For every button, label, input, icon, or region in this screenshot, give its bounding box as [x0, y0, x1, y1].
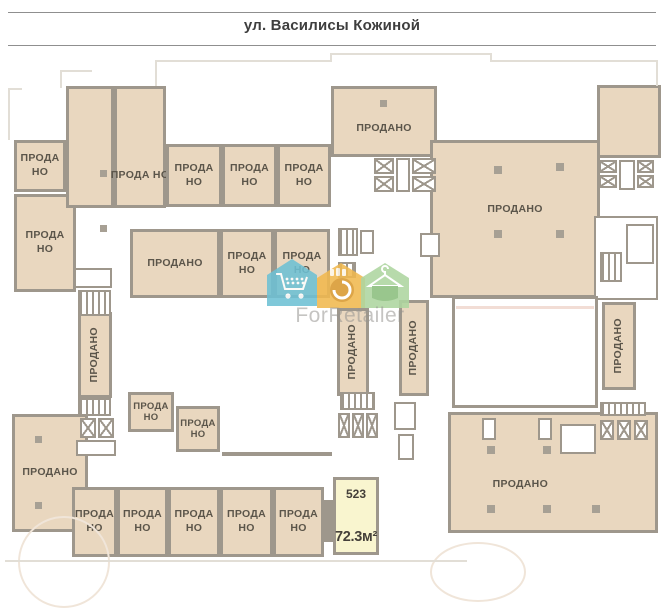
elevator-icon [599, 160, 617, 173]
unit-vert-right[interactable]: ПРОДАНО [602, 302, 636, 390]
service-room [398, 434, 414, 460]
unit-label: ПРОДАНО [346, 324, 360, 379]
service-room [560, 424, 596, 454]
service-room [420, 233, 440, 257]
elevator-icon [412, 176, 436, 192]
column-mark [100, 225, 107, 232]
unit-small-2[interactable]: ПРОДА НО [176, 406, 220, 452]
column-mark [380, 100, 387, 107]
service-room [626, 224, 654, 264]
unit-vert-left[interactable]: ПРОДАНО [78, 312, 112, 398]
service-room [76, 440, 116, 456]
unit-vert-center-2[interactable]: ПРОДАНО [399, 300, 429, 396]
column-mark [494, 230, 502, 238]
unit-small-1[interactable]: ПРОДА НО [128, 392, 174, 432]
outline-arc [18, 516, 110, 608]
column-mark [487, 446, 495, 454]
column-mark [556, 230, 564, 238]
elevator-icon [352, 413, 364, 438]
service-room [74, 268, 112, 288]
stairs-hatch [600, 252, 622, 282]
service-room [396, 158, 410, 192]
unit-vert-center-1[interactable]: ПРОДАНО [337, 308, 369, 396]
column-mark [543, 505, 551, 513]
unit-bottom-row-3[interactable]: ПРОДА НО [168, 487, 220, 557]
service-room [394, 402, 416, 430]
unit-label: ПРОДАНО [407, 320, 421, 375]
unit-area: 72.3м² [335, 529, 377, 545]
stairs-hatch [338, 262, 356, 278]
elevator-icon [80, 418, 96, 438]
column-mark [35, 436, 42, 443]
unit-label: ПРОДА НО [169, 162, 219, 189]
stairs-hatch [338, 228, 358, 256]
unit-number: 523 [346, 487, 366, 501]
unit-mid-row-3[interactable]: ПРОДА НО [274, 229, 330, 298]
unit-label: ПРОДАНО [147, 257, 202, 271]
unit-label: ПРОДАНО [356, 122, 411, 136]
unit-label: ПРОДА НО [223, 508, 270, 535]
building-outline [330, 53, 492, 55]
stairs-hatch [340, 392, 375, 410]
column-mark [100, 170, 107, 177]
unit-top-row-3[interactable]: ПРОДА НО [277, 144, 331, 207]
unit-left-top[interactable]: ПРОДА НО [14, 140, 66, 192]
building-outline [490, 60, 658, 62]
atrium-void [452, 296, 598, 408]
elevator-icon [634, 420, 648, 440]
unit-bottom-row-4[interactable]: ПРОДА НО [220, 487, 273, 557]
unit-label: ПРОДА НО [171, 508, 217, 535]
outline-arc [430, 542, 526, 602]
unit-label: ПРОДА НО [223, 250, 271, 277]
unit-label: ПРОДА НО [120, 508, 165, 535]
elevator-icon [374, 158, 394, 174]
building-outline [60, 70, 92, 72]
unit-label: ПРОДА НО [280, 162, 328, 189]
building-outline [155, 60, 157, 86]
unit-523-selected[interactable]: 523 72.3м² [333, 477, 379, 555]
unit-label: ПРОДА НО [225, 162, 274, 189]
unit-tall-1[interactable] [66, 86, 114, 208]
stairs-hatch [78, 398, 111, 416]
building-outline [5, 560, 467, 562]
elevator-icon [374, 176, 394, 192]
unit-mid-row-2[interactable]: ПРОДА НО [220, 229, 274, 298]
elevator-icon [637, 175, 654, 188]
unit-top-row-2[interactable]: ПРОДА НО [222, 144, 277, 207]
unit-label: ПРОДА НО [17, 152, 63, 179]
unit-label: ПРОДА НО [276, 508, 321, 535]
elevator-icon [338, 413, 350, 438]
building-outline [155, 60, 332, 62]
wall-segment [222, 452, 332, 456]
elevator-icon [599, 175, 617, 188]
unit-tall-2[interactable]: ПРОДА НО [114, 86, 166, 208]
unit-label: ПРОДА НО [111, 169, 170, 183]
column-mark [556, 163, 564, 171]
elevator-icon [412, 158, 436, 174]
elevator-icon [366, 413, 378, 438]
unit-label: ПРОДАНО [493, 478, 548, 492]
unit-left-mid[interactable]: ПРОДА НО [14, 194, 76, 292]
column-mark [487, 505, 495, 513]
unit-label: ПРОДА НО [277, 250, 327, 277]
unit-mid-row-wide[interactable]: ПРОДАНО [130, 229, 220, 298]
unit-bottom-row-5[interactable]: ПРОДА НО [273, 487, 324, 557]
accent-strip [456, 306, 594, 309]
unit-top-row-1[interactable]: ПРОДА НО [166, 144, 222, 207]
column-mark [543, 446, 551, 454]
service-room [360, 230, 374, 254]
unit-label: ПРОДАНО [612, 318, 626, 373]
column-mark [35, 502, 42, 509]
elevator-icon [637, 160, 654, 173]
building-outline [8, 88, 10, 140]
elevator-icon [98, 418, 114, 438]
service-room [482, 418, 496, 440]
unit-right-annex[interactable] [597, 85, 661, 158]
stairs-hatch [600, 402, 646, 416]
service-room [538, 418, 552, 440]
unit-right-top-big[interactable]: ПРОДАНО [430, 140, 600, 298]
building-outline [656, 60, 658, 86]
unit-label: ПРОДАНО [22, 466, 77, 480]
building-outline [60, 70, 62, 88]
column-mark [494, 166, 502, 174]
building-outline [8, 88, 22, 90]
unit-label: ПРОДА НО [131, 401, 171, 424]
floor-plan: ПРОДА НОПРОДА НОПРОДА НОПРОДА НОПРОДА НО… [0, 0, 664, 570]
unit-label: ПРОДАНО [88, 327, 102, 382]
service-room [619, 160, 635, 190]
unit-top-center[interactable]: ПРОДАНО [331, 86, 437, 157]
unit-label: ПРОДА НО [17, 229, 73, 256]
unit-label: ПРОДА НО [179, 418, 217, 441]
unit-label: ПРОДАНО [487, 203, 542, 217]
building-outline [330, 53, 332, 62]
stairs-hatch [78, 290, 111, 316]
elevator-icon [600, 420, 614, 440]
unit-bottom-row-2[interactable]: ПРОДА НО [117, 487, 168, 557]
elevator-icon [617, 420, 631, 440]
column-mark [592, 505, 600, 513]
